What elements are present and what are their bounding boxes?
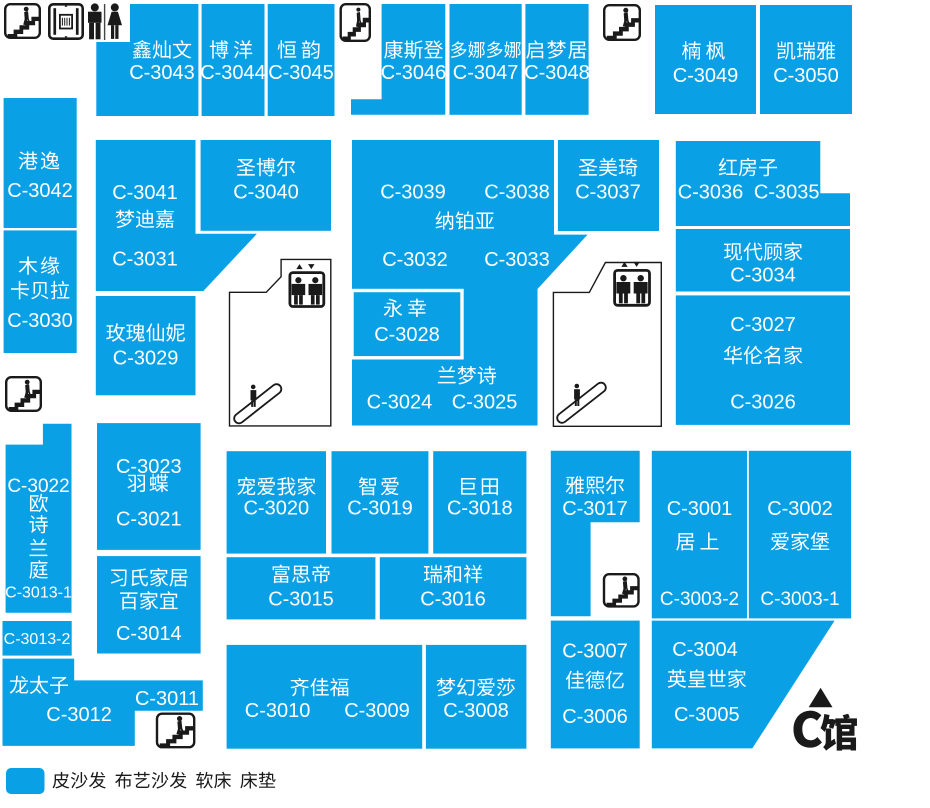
svg-text:C-3011: C-3011 <box>135 688 199 710</box>
svg-text:C-3044: C-3044 <box>200 62 266 84</box>
svg-text:C-3043: C-3043 <box>129 62 195 84</box>
svg-text:C-3049: C-3049 <box>673 65 739 87</box>
svg-text:C-3045: C-3045 <box>268 62 334 84</box>
svg-text:C-3035: C-3035 <box>754 182 820 204</box>
svg-text:C-3037: C-3037 <box>575 182 641 204</box>
svg-text:C-3020: C-3020 <box>243 498 309 520</box>
svg-text:C-3001: C-3001 <box>667 498 733 520</box>
svg-text:C-3005: C-3005 <box>674 704 740 726</box>
svg-text:C-3025: C-3025 <box>452 392 518 414</box>
svg-text:C-3040: C-3040 <box>233 182 299 204</box>
svg-text:C-3023: C-3023 <box>116 456 182 478</box>
svg-text:C-3032: C-3032 <box>382 249 448 271</box>
svg-text:C-3014: C-3014 <box>116 623 182 645</box>
svg-text:C-3039: C-3039 <box>380 182 446 204</box>
svg-text:C-3016: C-3016 <box>420 588 486 610</box>
svg-text:C-3048: C-3048 <box>524 62 590 84</box>
svg-text:C-3050: C-3050 <box>773 65 839 87</box>
svg-text:C-3036: C-3036 <box>678 182 744 204</box>
svg-text:C-3042: C-3042 <box>7 180 73 202</box>
svg-text:C-3038: C-3038 <box>484 182 550 204</box>
svg-text:C-3007: C-3007 <box>562 640 628 662</box>
svg-text:C-3030: C-3030 <box>7 310 73 332</box>
svg-text:C-3027: C-3027 <box>730 314 796 336</box>
svg-text:C-3028: C-3028 <box>374 324 440 346</box>
svg-text:C-3029: C-3029 <box>113 348 179 370</box>
svg-text:C-3002: C-3002 <box>767 498 833 520</box>
svg-text:C-3008: C-3008 <box>443 700 509 722</box>
svg-text:C-3047: C-3047 <box>453 62 519 84</box>
svg-text:C-3018: C-3018 <box>447 498 513 520</box>
svg-text:C-3034: C-3034 <box>730 265 796 287</box>
svg-text:C-3031: C-3031 <box>112 249 178 271</box>
svg-text:C-3022: C-3022 <box>7 476 69 497</box>
svg-text:C-3015: C-3015 <box>268 588 334 610</box>
svg-text:C-3041: C-3041 <box>112 182 178 204</box>
svg-text:C-3004: C-3004 <box>672 639 738 661</box>
svg-text:C-3010: C-3010 <box>245 700 311 722</box>
svg-text:C-3003-2: C-3003-2 <box>660 589 739 610</box>
svg-text:C-3013-1: C-3013-1 <box>5 585 72 602</box>
svg-text:C-3006: C-3006 <box>562 706 628 728</box>
svg-text:C-3046: C-3046 <box>381 62 447 84</box>
svg-text:C-3019: C-3019 <box>347 498 413 520</box>
svg-text:C-3033: C-3033 <box>484 249 550 271</box>
svg-text:C-3026: C-3026 <box>730 391 796 413</box>
svg-text:C-3024: C-3024 <box>367 392 433 414</box>
svg-text:C-3021: C-3021 <box>116 509 182 531</box>
svg-text:C-3017: C-3017 <box>562 498 628 520</box>
svg-text:C-3003-1: C-3003-1 <box>760 589 839 610</box>
svg-text:C-3012: C-3012 <box>46 704 112 726</box>
svg-text:C-3009: C-3009 <box>344 700 410 722</box>
svg-text:C-3013-2: C-3013-2 <box>4 631 71 648</box>
